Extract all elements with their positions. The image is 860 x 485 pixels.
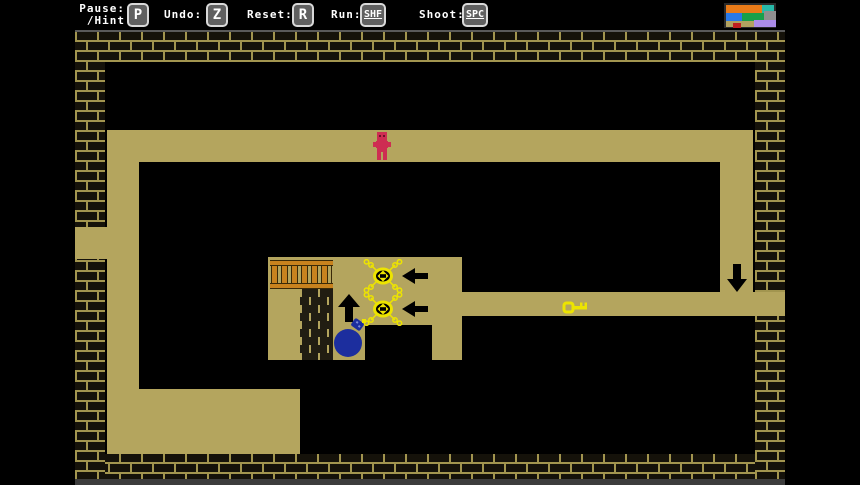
undo-label: Undo: [164,9,202,21]
arrow-left-icon [402,301,428,317]
path-middle-exit-right [462,292,785,316]
fence [270,260,333,289]
path-top [107,130,753,162]
spider-enemy-icon [363,292,403,326]
run-label: Run: [331,9,362,21]
pause-hint-label: Pause:/Hint [78,3,125,27]
room-middle-lower-right [432,325,462,360]
passage-exit-left [75,227,108,259]
reset-key-button[interactable]: R [292,3,314,27]
room-bottom-left [107,389,300,454]
player-sprite [373,132,391,160]
arrow-down-icon [727,264,747,292]
window-bottom-edge [75,479,785,485]
bomb [334,329,362,357]
game-canvas[interactable] [75,30,785,480]
minimap-block [726,13,742,21]
fence-slats [271,266,332,283]
minimap-block [726,5,762,13]
inner-brick-column [300,289,333,360]
key-icon [562,299,588,315]
undo-key-button[interactable]: Z [206,3,228,27]
arrow-left-icon [402,268,428,284]
bomb-spark [362,319,366,323]
pause-key-button[interactable]: P [127,3,149,27]
minimap-block [754,20,776,27]
wall-bottom [75,454,785,482]
wall-top [75,32,785,62]
run-key-button[interactable]: SHF [360,3,386,27]
minimap-block [733,23,741,28]
shoot-key-button[interactable]: SPC [462,3,488,27]
level-minimap-icon [724,3,776,28]
shoot-label: Shoot: [419,9,465,21]
wall-right [755,32,785,482]
toolbar: Pause:/Hint P Undo: Z Reset: R Run: SHF … [0,0,860,30]
spider-enemy-icon [363,259,403,293]
reset-label: Reset: [247,9,293,21]
